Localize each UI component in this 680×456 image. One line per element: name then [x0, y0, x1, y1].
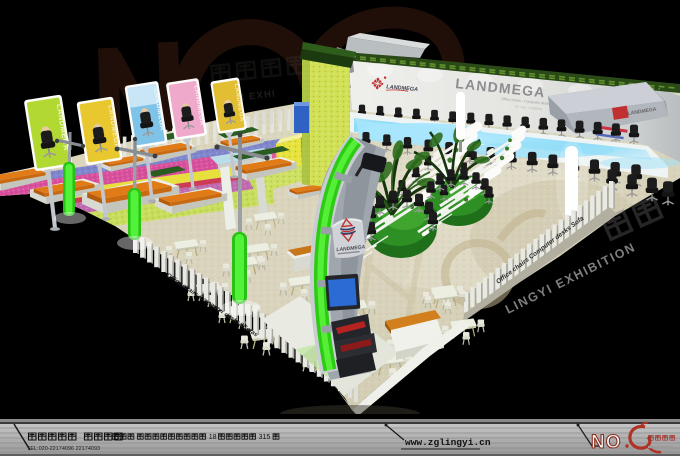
svg-text:TEL:020-22174096 22174093: TEL:020-22174096 22174093 [27, 446, 100, 452]
svg-text:18: 18 [209, 434, 217, 441]
svg-text:NO: NO [591, 432, 622, 453]
svg-text:315: 315 [259, 434, 271, 441]
svg-text:www.zglingyi.cn: www.zglingyi.cn [405, 437, 491, 448]
